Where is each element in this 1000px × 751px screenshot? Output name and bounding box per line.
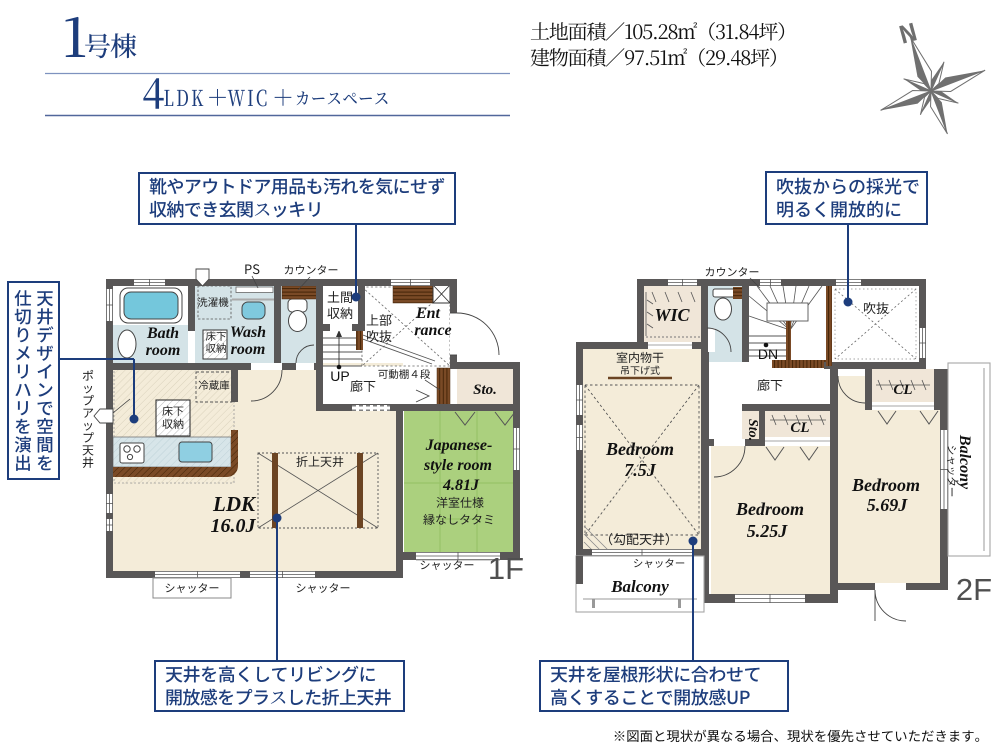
svg-text:1F: 1F [488,551,524,586]
svg-text:LDK: LDK [212,492,257,516]
svg-text:DN: DN [758,346,778,362]
svg-text:2F: 2F [956,572,992,607]
svg-text:5.69J: 5.69J [867,495,909,515]
svg-text:4.81J: 4.81J [442,477,480,494]
svg-text:Balcony: Balcony [610,577,669,596]
svg-text:room: room [146,342,181,359]
svg-text:16.0J: 16.0J [211,515,257,537]
svg-text:Ent: Ent [415,305,441,322]
svg-text:CL: CL [893,382,912,398]
svg-text:WIC: WIC [654,305,690,325]
svg-text:Sto.: Sto. [473,382,497,398]
svg-text:room: room [231,341,266,358]
svg-text:Sto.: Sto. [745,419,760,441]
svg-text:5.25J: 5.25J [747,521,789,541]
svg-text:rance: rance [414,322,451,339]
svg-text:style room: style room [423,457,492,474]
svg-text:Bedroom: Bedroom [735,499,804,519]
svg-text:Japanese-: Japanese- [425,437,493,454]
svg-text:Bath: Bath [146,325,179,342]
svg-text:Bedroom: Bedroom [851,475,920,495]
svg-text:Balcony: Balcony [956,434,973,490]
svg-text:Wash: Wash [230,324,266,341]
svg-text:CL: CL [790,420,809,436]
svg-text:UP: UP [330,368,349,384]
svg-text:Bedroom: Bedroom [605,439,674,459]
svg-text:7.5J: 7.5J [624,460,657,480]
